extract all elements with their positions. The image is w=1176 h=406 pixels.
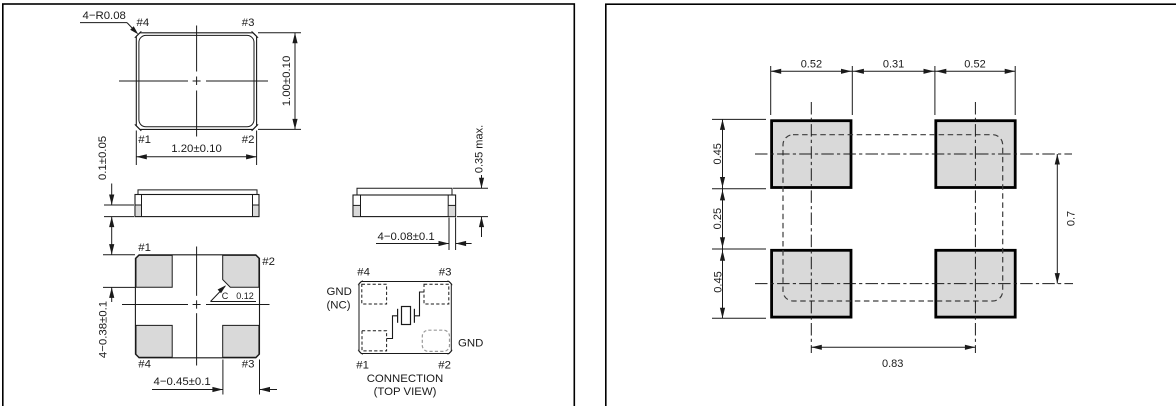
svg-text:0.45: 0.45: [712, 271, 724, 292]
svg-text:#1: #1: [356, 359, 369, 371]
svg-text:GND: GND: [458, 338, 483, 350]
svg-text:0.52: 0.52: [801, 58, 822, 70]
svg-text:1.00±0.10: 1.00±0.10: [281, 56, 293, 107]
svg-text:#3: #3: [242, 17, 255, 29]
svg-text:#2: #2: [262, 256, 275, 268]
svg-text:4−0.45±0.1: 4−0.45±0.1: [154, 376, 211, 388]
svg-text:#2: #2: [438, 359, 451, 371]
svg-text:#2: #2: [242, 134, 255, 146]
svg-text:(NC): (NC): [327, 299, 351, 311]
svg-text:CONNECTION: CONNECTION: [367, 373, 444, 385]
svg-text:#4: #4: [138, 359, 151, 371]
svg-text:0.45: 0.45: [712, 143, 724, 164]
svg-text:#3: #3: [242, 359, 255, 371]
svg-text:#4: #4: [137, 17, 150, 29]
svg-text:C: C: [222, 291, 229, 301]
svg-text:0.12: 0.12: [236, 291, 254, 301]
svg-text:(TOP VIEW): (TOP VIEW): [374, 386, 437, 398]
svg-text:GND: GND: [327, 286, 352, 298]
svg-text:0.35 max.: 0.35 max.: [474, 125, 486, 173]
svg-text:4−0.08±0.1: 4−0.08±0.1: [378, 231, 435, 243]
svg-text:#1: #1: [138, 134, 151, 146]
svg-text:0.83: 0.83: [882, 358, 903, 370]
svg-text:#1: #1: [138, 242, 151, 254]
svg-text:1.20±0.10: 1.20±0.10: [171, 143, 222, 155]
svg-text:0.25: 0.25: [712, 208, 724, 229]
svg-text:0.7: 0.7: [1066, 211, 1078, 226]
svg-text:#4: #4: [357, 267, 370, 279]
svg-text:#3: #3: [439, 267, 452, 279]
svg-text:0.1±0.05: 0.1±0.05: [97, 136, 109, 180]
svg-text:0.31: 0.31: [883, 58, 904, 70]
svg-text:4−R0.08: 4−R0.08: [83, 10, 126, 22]
svg-text:0.52: 0.52: [964, 58, 985, 70]
svg-text:4−0.38±0.1: 4−0.38±0.1: [98, 301, 110, 358]
